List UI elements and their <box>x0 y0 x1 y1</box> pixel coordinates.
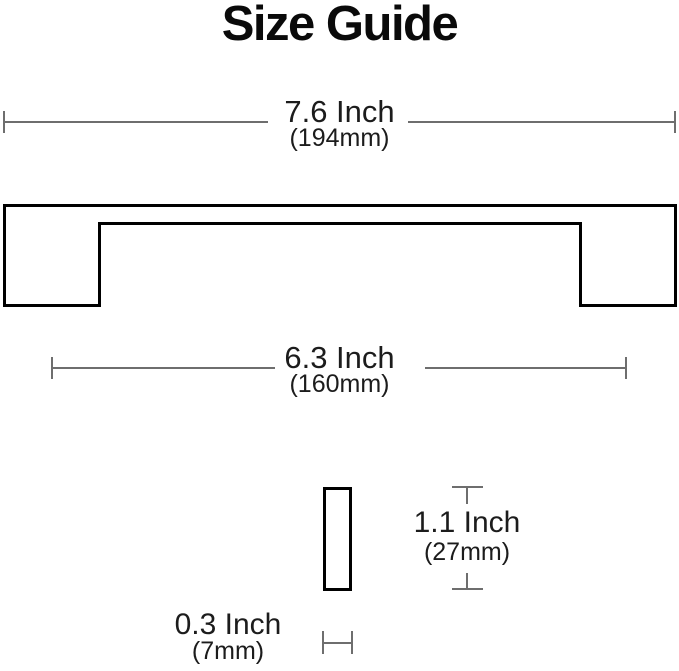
thickness-inches-label: 0.3 Inch <box>148 610 308 640</box>
dimension-end-bar-bottom <box>452 588 483 590</box>
dimension-end-tick-right <box>625 357 627 379</box>
dimension-end-tick-right <box>351 631 353 654</box>
height-inches-label: 1.1 Inch <box>387 508 547 538</box>
hole-spacing-metric-label: (160mm) <box>0 372 679 397</box>
size-guide-diagram: Size Guide 7.6 Inch (194mm) 6.3 Inch (16… <box>0 0 679 671</box>
dimension-line-right-segment <box>425 367 626 369</box>
thickness-metric-label: (7mm) <box>148 639 308 664</box>
dimension-stem-top <box>466 488 468 504</box>
handle-side-view-outline <box>325 489 351 590</box>
dimension-line <box>323 642 353 644</box>
handle-shapes-layer <box>0 0 679 671</box>
height-metric-label: (27mm) <box>387 540 547 565</box>
dimension-stem-bottom <box>466 573 468 589</box>
handle-front-view-outline <box>5 206 676 306</box>
